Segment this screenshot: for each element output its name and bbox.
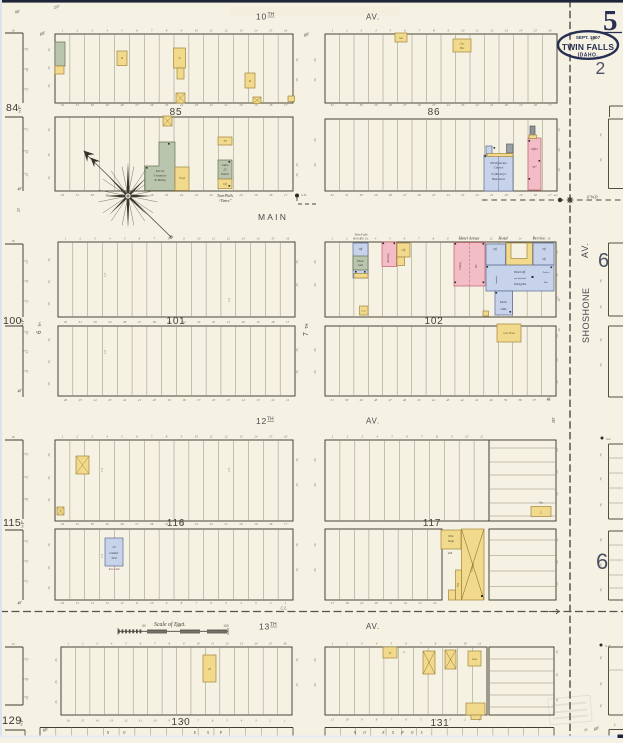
- svg-text:24: 24: [182, 320, 186, 324]
- svg-text:Office: Office: [531, 148, 539, 151]
- svg-text:25: 25: [295, 348, 299, 352]
- svg-text:Gal: Gal: [606, 437, 611, 441]
- svg-text:25: 25: [432, 193, 436, 197]
- svg-text:25: 25: [555, 650, 559, 654]
- svg-text:27: 27: [403, 103, 407, 107]
- svg-text:29: 29: [108, 320, 112, 324]
- svg-text:6: 6: [596, 549, 608, 574]
- svg-text:26: 26: [150, 522, 154, 526]
- svg-text:25: 25: [313, 543, 317, 547]
- svg-text:22: 22: [476, 193, 480, 197]
- svg-text:14: 14: [256, 237, 260, 241]
- svg-text:16: 16: [11, 435, 15, 439]
- svg-text:25: 25: [313, 370, 317, 374]
- svg-text:25: 25: [54, 658, 58, 662]
- svg-text:125: 125: [227, 297, 231, 302]
- svg-text:AV.: AV.: [366, 417, 380, 426]
- svg-text:16: 16: [547, 237, 551, 241]
- svg-text:25: 25: [165, 522, 169, 526]
- svg-text:N: N: [353, 731, 357, 735]
- svg-text:24: 24: [180, 103, 184, 107]
- svg-text:17: 17: [284, 193, 288, 197]
- svg-text:17: 17: [548, 193, 552, 197]
- svg-text:22: 22: [210, 193, 214, 197]
- svg-text:29: 29: [374, 193, 378, 197]
- svg-text:25: 25: [47, 48, 51, 52]
- svg-text:Gall: Gall: [358, 264, 363, 267]
- svg-text:11: 11: [212, 237, 215, 241]
- svg-text:18: 18: [345, 601, 349, 605]
- svg-text:11: 11: [476, 29, 479, 33]
- svg-text:41: 41: [475, 398, 479, 402]
- svg-text:New: New: [447, 534, 453, 538]
- svg-text:Sh'd: Sh'd: [112, 556, 118, 560]
- svg-text:125: 125: [103, 349, 107, 354]
- svg-text:25: 25: [54, 700, 58, 704]
- svg-text:Family: Family: [459, 261, 462, 270]
- svg-text:30: 30: [93, 320, 97, 324]
- svg-text:27: 27: [403, 193, 407, 197]
- svg-text:25: 25: [313, 683, 317, 687]
- svg-text:25: 25: [313, 458, 317, 462]
- svg-text:32: 32: [331, 193, 335, 197]
- svg-text:21: 21: [224, 522, 228, 526]
- svg-text:Paints: Paints: [220, 172, 229, 176]
- svg-text:466: 466: [448, 552, 453, 555]
- svg-text:19: 19: [254, 522, 258, 526]
- svg-text:14: 14: [254, 642, 258, 646]
- svg-text:25: 25: [47, 382, 51, 386]
- svg-text:23: 23: [108, 398, 112, 402]
- svg-text:131: 131: [430, 718, 449, 729]
- svg-text:25: 25: [47, 84, 51, 88]
- svg-text:75: 75: [599, 279, 603, 283]
- svg-text:25: 25: [557, 168, 561, 172]
- svg-text:17: 17: [286, 320, 290, 324]
- svg-text:10: 10: [345, 718, 349, 722]
- svg-text:25: 25: [557, 128, 561, 132]
- svg-text:19: 19: [254, 103, 258, 107]
- svg-text:25: 25: [295, 683, 299, 687]
- svg-text:22: 22: [210, 103, 214, 107]
- svg-text:27: 27: [135, 522, 139, 526]
- svg-text:Gas: Gas: [399, 37, 403, 40]
- svg-text:16: 16: [548, 29, 552, 33]
- svg-text:25: 25: [295, 260, 299, 264]
- svg-text:14: 14: [91, 601, 95, 605]
- svg-text:10: 10: [465, 435, 469, 439]
- svg-text:16: 16: [284, 29, 288, 33]
- svg-text:10: 10: [256, 12, 267, 22]
- svg-text:a.c.: a.c.: [554, 193, 559, 197]
- svg-text:30: 30: [91, 193, 95, 197]
- svg-text:15: 15: [271, 237, 275, 241]
- svg-text:23: 23: [461, 103, 465, 107]
- svg-text:19: 19: [256, 320, 260, 324]
- svg-text:25: 25: [555, 250, 559, 254]
- svg-text:2: 2: [596, 58, 606, 78]
- svg-text:25: 25: [47, 153, 51, 157]
- svg-text:43: 43: [446, 398, 450, 402]
- svg-text:25: 25: [295, 173, 299, 177]
- svg-text:Glass: Glass: [222, 163, 230, 167]
- svg-text:15: 15: [11, 642, 15, 646]
- svg-text:17: 17: [284, 103, 288, 107]
- svg-text:11: 11: [139, 719, 142, 723]
- svg-text:SEPT. 1907: SEPT. 1907: [576, 35, 601, 40]
- svg-text:12: 12: [225, 642, 229, 646]
- svg-text:49: 49: [360, 398, 364, 402]
- svg-text:26: 26: [153, 320, 157, 324]
- svg-text:75: 75: [599, 363, 603, 367]
- svg-text:25: 25: [555, 560, 559, 564]
- svg-text:80': 80': [551, 417, 556, 422]
- svg-text:21: 21: [490, 103, 494, 107]
- svg-text:20: 20: [505, 193, 509, 197]
- svg-text:29: 29: [105, 522, 109, 526]
- svg-text:25: 25: [47, 498, 51, 502]
- svg-text:10: 10: [463, 642, 467, 646]
- svg-text:25: 25: [295, 458, 299, 462]
- svg-text:21: 21: [138, 398, 142, 402]
- svg-text:22: 22: [210, 522, 214, 526]
- svg-text:6: 6: [36, 330, 43, 334]
- svg-text:25: 25: [295, 568, 299, 572]
- svg-text:26: 26: [418, 193, 422, 197]
- svg-text:16: 16: [284, 435, 288, 439]
- svg-text:25: 25: [313, 138, 317, 142]
- svg-text:Bowling: Bowling: [387, 253, 390, 263]
- svg-text:27: 27: [138, 320, 142, 324]
- svg-text:26: 26: [150, 193, 154, 197]
- svg-text:28: 28: [120, 103, 124, 107]
- svg-text:51: 51: [331, 398, 335, 402]
- svg-text:25: 25: [555, 448, 559, 452]
- svg-text:S: S: [178, 56, 180, 60]
- svg-text:10: 10: [197, 237, 201, 241]
- svg-text:13: 13: [504, 237, 508, 241]
- svg-text:25: 25: [313, 568, 317, 572]
- svg-text:Scale of Feet.: Scale of Feet.: [154, 621, 186, 628]
- svg-text:25: 25: [47, 453, 51, 457]
- svg-text:6″W.P.: 6″W.P.: [587, 195, 598, 200]
- svg-text:25: 25: [47, 302, 51, 306]
- svg-text:11: 11: [478, 642, 481, 646]
- svg-text:Bar: Bar: [544, 281, 548, 284]
- svg-text:18: 18: [269, 193, 273, 197]
- svg-text:25: 25: [557, 328, 561, 332]
- svg-text:130: 130: [171, 717, 190, 728]
- svg-text:25: 25: [555, 296, 559, 300]
- svg-text:20: 20: [239, 193, 243, 197]
- svg-text:31: 31: [345, 103, 349, 107]
- svg-text:14: 14: [519, 29, 523, 33]
- svg-text:75: 75: [599, 704, 603, 708]
- svg-text:19: 19: [254, 193, 258, 197]
- svg-text:20: 20: [505, 103, 509, 107]
- svg-text:23: 23: [195, 193, 199, 197]
- svg-text:Lumber: Lumber: [109, 551, 120, 555]
- svg-text:46: 46: [403, 398, 407, 402]
- svg-text:Kitchn: Kitchn: [499, 301, 508, 304]
- svg-text:75: 75: [599, 503, 603, 507]
- svg-text:Hay: Hay: [538, 502, 544, 505]
- svg-text:25: 25: [295, 78, 299, 82]
- svg-text:22: 22: [404, 601, 408, 605]
- svg-text:25: 25: [313, 78, 317, 82]
- svg-text:Parlor: Parlor: [542, 271, 550, 274]
- svg-text:12: 12: [224, 29, 228, 33]
- svg-text:20: 20: [239, 103, 243, 107]
- svg-text:TH: TH: [304, 323, 309, 329]
- svg-text:11: 11: [475, 237, 478, 241]
- svg-text:29: 29: [105, 193, 109, 197]
- svg-text:12: 12: [256, 416, 267, 426]
- svg-text:125: 125: [100, 467, 104, 472]
- svg-text:7: 7: [303, 332, 310, 336]
- svg-text:19: 19: [519, 193, 523, 197]
- svg-text:S: S: [421, 731, 423, 735]
- svg-text:15: 15: [269, 29, 273, 33]
- svg-text:25: 25: [47, 360, 51, 364]
- svg-text:19: 19: [519, 103, 523, 107]
- svg-text:28: 28: [389, 103, 393, 107]
- svg-text:24: 24: [447, 193, 451, 197]
- svg-text:11: 11: [210, 29, 213, 33]
- svg-text:17: 17: [284, 522, 288, 526]
- svg-text:25: 25: [47, 543, 51, 547]
- svg-text:115: 115: [3, 517, 21, 529]
- svg-text:20: 20: [375, 601, 379, 605]
- svg-text:13: 13: [240, 642, 244, 646]
- svg-text:24: 24: [180, 193, 184, 197]
- svg-text:C.L.: C.L.: [281, 606, 288, 611]
- svg-text:38: 38: [518, 398, 522, 402]
- svg-text:22: 22: [476, 103, 480, 107]
- svg-text:G.H.: G.H.: [301, 193, 307, 197]
- svg-text:10: 10: [150, 601, 154, 605]
- svg-text:25: 25: [432, 103, 436, 107]
- svg-text:30: 30: [91, 103, 95, 107]
- svg-text:10: 10: [195, 29, 199, 33]
- svg-text:15: 15: [534, 29, 538, 33]
- svg-text:125: 125: [227, 467, 231, 472]
- svg-text:45: 45: [417, 398, 421, 402]
- svg-text:19: 19: [168, 398, 172, 402]
- svg-text:24: 24: [433, 601, 437, 605]
- svg-text:14: 14: [518, 237, 522, 241]
- svg-text:22: 22: [212, 320, 216, 324]
- svg-text:117: 117: [423, 518, 441, 529]
- svg-text:25: 25: [47, 258, 51, 262]
- svg-text:25: 25: [165, 193, 169, 197]
- svg-text:Creamery: Creamery: [154, 174, 167, 178]
- svg-text:20: 20: [242, 320, 246, 324]
- svg-text:19: 19: [360, 601, 364, 605]
- svg-text:25: 25: [47, 566, 51, 570]
- svg-text:25: 25: [47, 66, 51, 70]
- svg-text:25: 25: [47, 476, 51, 480]
- svg-text:23: 23: [461, 193, 465, 197]
- svg-text:13: 13: [110, 719, 114, 723]
- svg-text:40: 40: [489, 398, 493, 402]
- svg-text:20: 20: [208, 667, 212, 671]
- svg-text:29: 29: [374, 103, 378, 107]
- svg-text:75: 75: [599, 453, 603, 457]
- svg-text:39: 39: [504, 398, 508, 402]
- svg-text:26: 26: [64, 398, 68, 402]
- svg-text:75: 75: [599, 538, 603, 542]
- svg-text:75: 75: [599, 158, 603, 162]
- svg-text:30: 30: [360, 103, 364, 107]
- svg-text:75: 75: [599, 338, 603, 342]
- svg-text:11: 11: [135, 601, 138, 605]
- svg-text:10: 10: [195, 435, 199, 439]
- svg-text:25: 25: [54, 680, 58, 684]
- svg-text:50: 50: [142, 624, 146, 628]
- svg-text:30: 30: [224, 139, 228, 143]
- svg-text:31: 31: [345, 193, 349, 197]
- svg-text:Dining Rm: Dining Rm: [513, 283, 526, 286]
- svg-text:Heat:Stoves: Heat:Stoves: [491, 178, 505, 181]
- svg-text:11: 11: [286, 398, 289, 402]
- svg-text:32: 32: [61, 193, 65, 197]
- svg-text:21: 21: [227, 320, 231, 324]
- svg-text:37: 37: [533, 398, 537, 402]
- svg-text:10: 10: [153, 719, 157, 723]
- svg-text:27: 27: [135, 193, 139, 197]
- svg-text:Parrot: Parrot: [155, 169, 164, 173]
- svg-text:23: 23: [195, 522, 199, 526]
- svg-text:25: 25: [555, 470, 559, 474]
- svg-text:75: 75: [599, 477, 603, 481]
- svg-text:31: 31: [76, 193, 80, 197]
- svg-text:28: 28: [120, 193, 124, 197]
- svg-text:28: 28: [123, 320, 127, 324]
- svg-text:18: 18: [182, 398, 186, 402]
- svg-text:30': 30': [17, 208, 21, 213]
- svg-text:25: 25: [313, 58, 317, 62]
- svg-text:Coal: Coal: [361, 310, 366, 313]
- svg-text:25: 25: [555, 492, 559, 496]
- svg-text:29: 29: [105, 103, 109, 107]
- svg-text:15: 15: [533, 237, 537, 241]
- svg-text:11: 11: [331, 718, 334, 722]
- svg-text:24: 24: [447, 103, 451, 107]
- svg-text:100: 100: [3, 315, 22, 327]
- svg-text:25: 25: [295, 483, 299, 487]
- svg-text:11: 11: [210, 435, 213, 439]
- svg-text:Presbyterian: Presbyterian: [489, 161, 507, 165]
- svg-text:23: 23: [418, 601, 422, 605]
- svg-text:15: 15: [269, 642, 273, 646]
- svg-text:125: 125: [100, 553, 104, 558]
- svg-text:13: 13: [239, 435, 243, 439]
- svg-text:25: 25: [47, 338, 51, 342]
- svg-text:24: 24: [180, 522, 184, 526]
- svg-text:15: 15: [76, 601, 80, 605]
- svg-text:26: 26: [418, 103, 422, 107]
- svg-text:44: 44: [432, 398, 436, 402]
- svg-text:21: 21: [389, 601, 393, 605]
- svg-text:32: 32: [64, 320, 68, 324]
- svg-text:28: 28: [389, 193, 393, 197]
- svg-text:16: 16: [212, 398, 216, 402]
- svg-text:12: 12: [271, 398, 275, 402]
- svg-text:31: 31: [76, 522, 80, 526]
- svg-text:25: 25: [555, 273, 559, 277]
- svg-text:14: 14: [96, 719, 100, 723]
- svg-text:15: 15: [227, 398, 231, 402]
- svg-text:20: 20: [153, 398, 157, 402]
- svg-text:Laundry: Laundry: [495, 275, 498, 285]
- svg-text:17: 17: [548, 103, 552, 107]
- svg-text:25: 25: [79, 398, 83, 402]
- svg-text:D.Rm: D.Rm: [500, 308, 507, 311]
- svg-text:11: 11: [480, 435, 483, 439]
- svg-text:MAIN: MAIN: [258, 212, 288, 222]
- svg-text:20: 20: [239, 522, 243, 526]
- svg-text:18: 18: [534, 103, 538, 107]
- svg-text:12: 12: [120, 601, 124, 605]
- svg-text:21: 21: [490, 193, 494, 197]
- svg-text:100: 100: [175, 624, 181, 628]
- svg-text:31: 31: [79, 320, 83, 324]
- svg-text:25: 25: [295, 543, 299, 547]
- svg-text:26: 26: [150, 103, 154, 107]
- svg-text:15: 15: [81, 719, 85, 723]
- svg-text:TWIN FALLS: TWIN FALLS: [562, 42, 614, 52]
- svg-text:24: 24: [93, 398, 97, 402]
- svg-text:25: 25: [295, 58, 299, 62]
- svg-text:28: 28: [120, 522, 124, 526]
- svg-text:13: 13: [505, 29, 509, 33]
- svg-text:N: N: [106, 731, 110, 735]
- svg-text:w: w: [403, 650, 405, 654]
- svg-text:25: 25: [555, 538, 559, 542]
- svg-text:25: 25: [47, 280, 51, 284]
- svg-text:14: 14: [242, 398, 246, 402]
- svg-text:Ho.: Ho.: [475, 264, 478, 269]
- svg-text:25: 25: [295, 163, 299, 167]
- svg-text:32: 32: [61, 103, 65, 107]
- svg-text:23: 23: [197, 320, 201, 324]
- svg-text:O: O: [411, 731, 414, 735]
- svg-text:16: 16: [286, 237, 290, 241]
- svg-text:47: 47: [388, 398, 392, 402]
- svg-text:48: 48: [374, 398, 378, 402]
- svg-text:16: 16: [67, 719, 71, 723]
- svg-text:25: 25: [555, 582, 559, 586]
- svg-text:21: 21: [224, 103, 228, 107]
- svg-text:42: 42: [461, 398, 465, 402]
- svg-text:84: 84: [6, 102, 19, 114]
- svg-text:16: 16: [61, 601, 65, 605]
- svg-text:.: .: [431, 731, 432, 735]
- svg-text:25: 25: [555, 673, 559, 677]
- svg-text:25: 25: [168, 320, 172, 324]
- svg-text:Hotel Off.: Hotel Off.: [513, 270, 526, 274]
- svg-text:31: 31: [76, 103, 80, 107]
- svg-text:AV.: AV.: [580, 242, 590, 258]
- svg-text:25: 25: [557, 148, 561, 152]
- svg-text:10: 10: [461, 29, 465, 33]
- svg-text:AV.: AV.: [366, 622, 380, 631]
- svg-text:25: 25: [295, 283, 299, 287]
- svg-text:17: 17: [389, 651, 392, 655]
- svg-text:30: 30: [360, 193, 364, 197]
- svg-text:150: 150: [223, 624, 229, 628]
